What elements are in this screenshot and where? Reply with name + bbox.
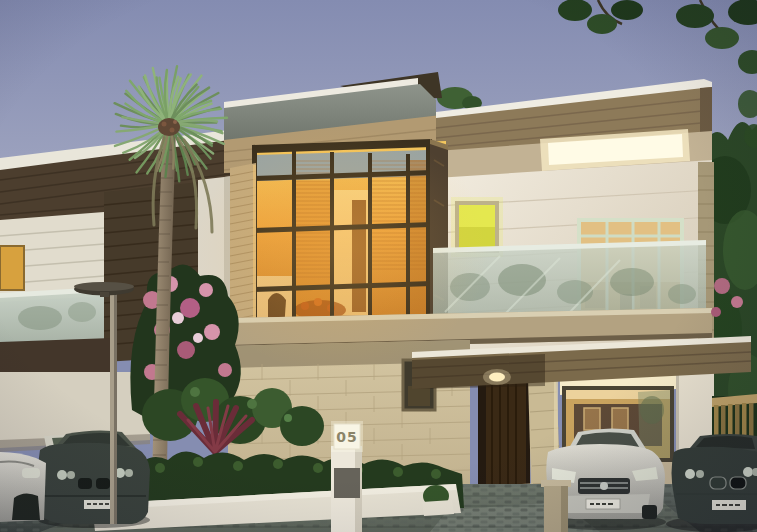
rendering-canvas: 05 [0,0,757,532]
villa-scene: 05 [0,0,757,532]
mailbox-panel [334,468,360,498]
main-house [190,72,757,520]
right-flowers [714,278,730,294]
gate-pillar [541,480,571,532]
palm-crown-core [158,118,180,136]
house-number-text: 05 [336,429,357,445]
car-left-dark-sedan [38,430,150,528]
car-left-silver [0,452,46,522]
left-house-lit-window [0,246,24,290]
house-number-pillar: 05 [331,421,363,532]
